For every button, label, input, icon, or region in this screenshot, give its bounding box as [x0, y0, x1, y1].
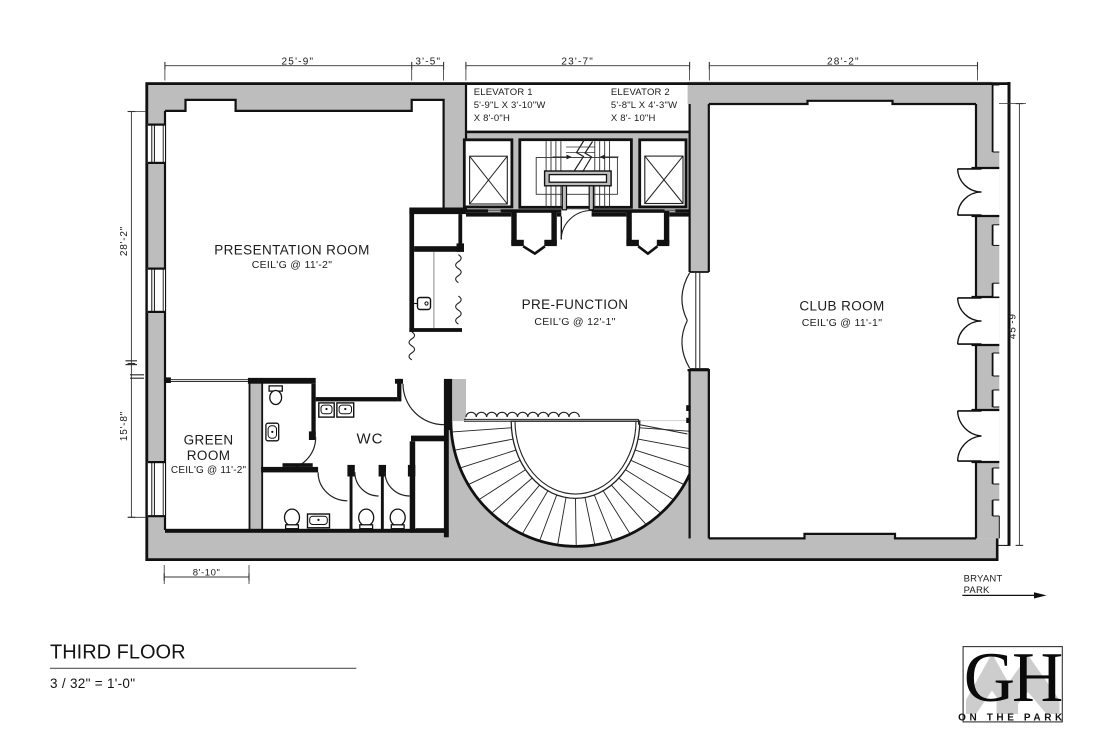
svg-text:15'-8": 15'-8" [119, 411, 130, 441]
svg-text:28'-2": 28'-2" [827, 56, 860, 67]
svg-text:X 8'-0"H: X 8'-0"H [474, 113, 510, 124]
svg-text:5'-9"L X 3'-10"W: 5'-9"L X 3'-10"W [474, 100, 546, 111]
svg-text:PARK: PARK [964, 585, 990, 596]
svg-text:ROOM: ROOM [187, 448, 231, 463]
svg-text:GH: GH [964, 639, 1062, 717]
svg-text:CEIL'G @ 11'-2": CEIL'G @ 11'-2" [171, 465, 247, 476]
svg-text:25'-9": 25'-9" [282, 56, 315, 67]
svg-text:CEIL'G @ 11'-2": CEIL'G @ 11'-2" [252, 259, 332, 271]
svg-text:8'-10": 8'-10" [193, 567, 221, 578]
svg-text:THIRD FLOOR: THIRD FLOOR [50, 642, 186, 664]
svg-text:5'-8"L X 4'-3"W: 5'-8"L X 4'-3"W [611, 100, 677, 111]
svg-text:PRE-FUNCTION: PRE-FUNCTION [522, 297, 629, 312]
svg-text:GREEN: GREEN [184, 433, 234, 448]
svg-text:PRESENTATION ROOM: PRESENTATION ROOM [214, 243, 370, 258]
svg-text:CLUB ROOM: CLUB ROOM [799, 299, 884, 314]
svg-text:23'-7": 23'-7" [561, 56, 594, 67]
svg-text:45'-9": 45'-9" [1008, 309, 1019, 339]
svg-text:ON THE PARK: ON THE PARK [958, 713, 1066, 724]
svg-text:28'-2": 28'-2" [119, 226, 130, 256]
svg-text:CEIL'G @ 12'-1": CEIL'G @ 12'-1" [534, 316, 615, 328]
svg-text:ELEVATOR 1: ELEVATOR 1 [474, 87, 533, 98]
svg-text:ELEVATOR 2: ELEVATOR 2 [611, 87, 670, 98]
svg-text:3 / 32" = 1'-0": 3 / 32" = 1'-0" [50, 676, 135, 691]
svg-text:3'-5": 3'-5" [415, 56, 441, 67]
svg-text:WC: WC [357, 431, 384, 448]
svg-text:BRYANT: BRYANT [964, 573, 1003, 584]
svg-text:X 8'- 10"H: X 8'- 10"H [611, 113, 656, 124]
svg-text:CEIL'G @ 11'-1": CEIL'G @ 11'-1" [802, 317, 882, 329]
